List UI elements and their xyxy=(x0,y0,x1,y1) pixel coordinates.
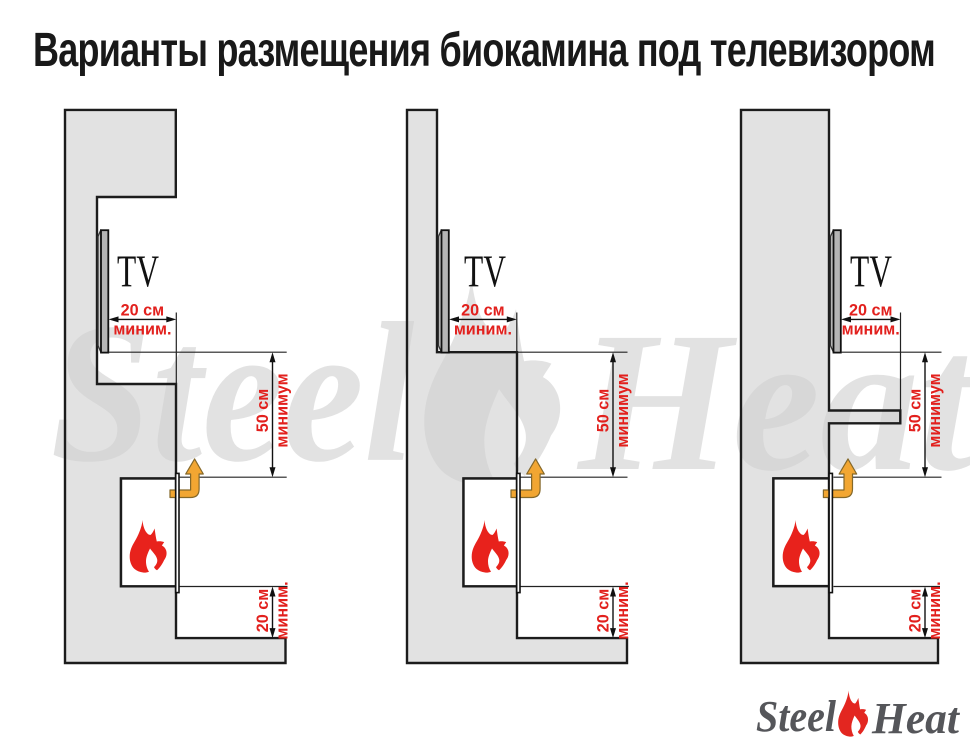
svg-text:миним.: миним. xyxy=(274,581,292,639)
svg-text:20 см: 20 см xyxy=(254,589,272,632)
svg-text:TV: TV xyxy=(850,247,892,297)
svg-text:20 см: 20 см xyxy=(907,589,925,632)
svg-text:50 см: 50 см xyxy=(907,389,925,432)
svg-text:TV: TV xyxy=(117,247,159,297)
svg-text:TV: TV xyxy=(464,247,506,297)
svg-text:миним.: миним. xyxy=(454,321,512,339)
svg-text:минимум: минимум xyxy=(274,373,292,447)
svg-text:миним.: миним. xyxy=(842,321,900,339)
svg-text:50 см: 50 см xyxy=(254,389,272,432)
svg-text:минимум: минимум xyxy=(614,373,632,447)
svg-text:миним.: миним. xyxy=(614,581,632,639)
svg-text:20 см: 20 см xyxy=(461,302,504,320)
svg-text:миним.: миним. xyxy=(113,321,171,339)
svg-text:20 см: 20 см xyxy=(849,302,892,320)
svg-text:Варианты размещения биокамина: Варианты размещения биокамина под телеви… xyxy=(33,24,935,77)
svg-text:20 см: 20 см xyxy=(121,302,164,320)
svg-text:минимум: минимум xyxy=(926,373,944,447)
svg-text:миним.: миним. xyxy=(926,581,944,639)
svg-text:20 см: 20 см xyxy=(595,589,613,632)
svg-text:50 см: 50 см xyxy=(595,389,613,432)
